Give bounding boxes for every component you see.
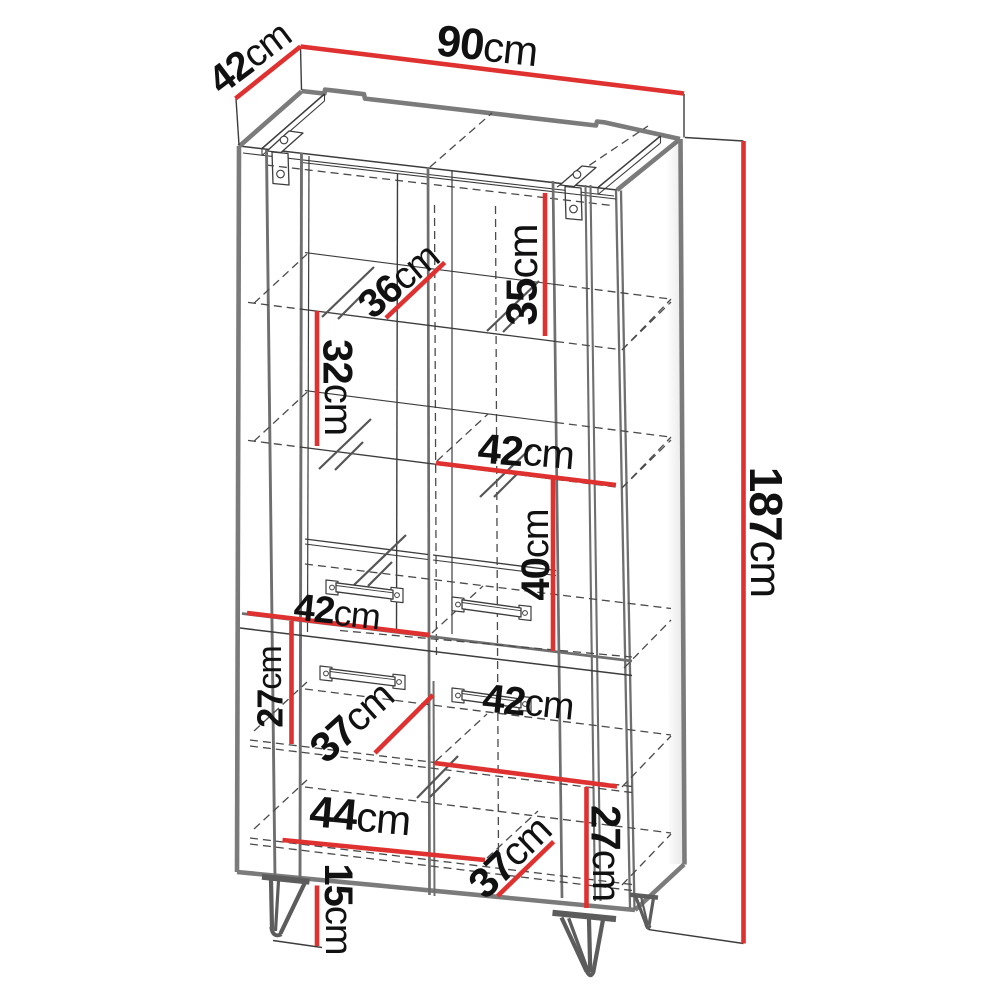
- svg-text:40cm: 40cm: [514, 509, 558, 600]
- svg-text:44cm: 44cm: [308, 787, 413, 845]
- svg-text:35cm: 35cm: [498, 225, 547, 326]
- svg-text:187cm: 187cm: [740, 467, 792, 597]
- svg-text:42cm: 42cm: [476, 424, 576, 479]
- svg-text:27cm: 27cm: [583, 805, 630, 901]
- svg-text:27cm: 27cm: [250, 646, 291, 727]
- svg-text:32cm: 32cm: [315, 339, 362, 435]
- svg-text:42cm: 42cm: [292, 587, 382, 638]
- svg-text:15cm: 15cm: [316, 863, 360, 954]
